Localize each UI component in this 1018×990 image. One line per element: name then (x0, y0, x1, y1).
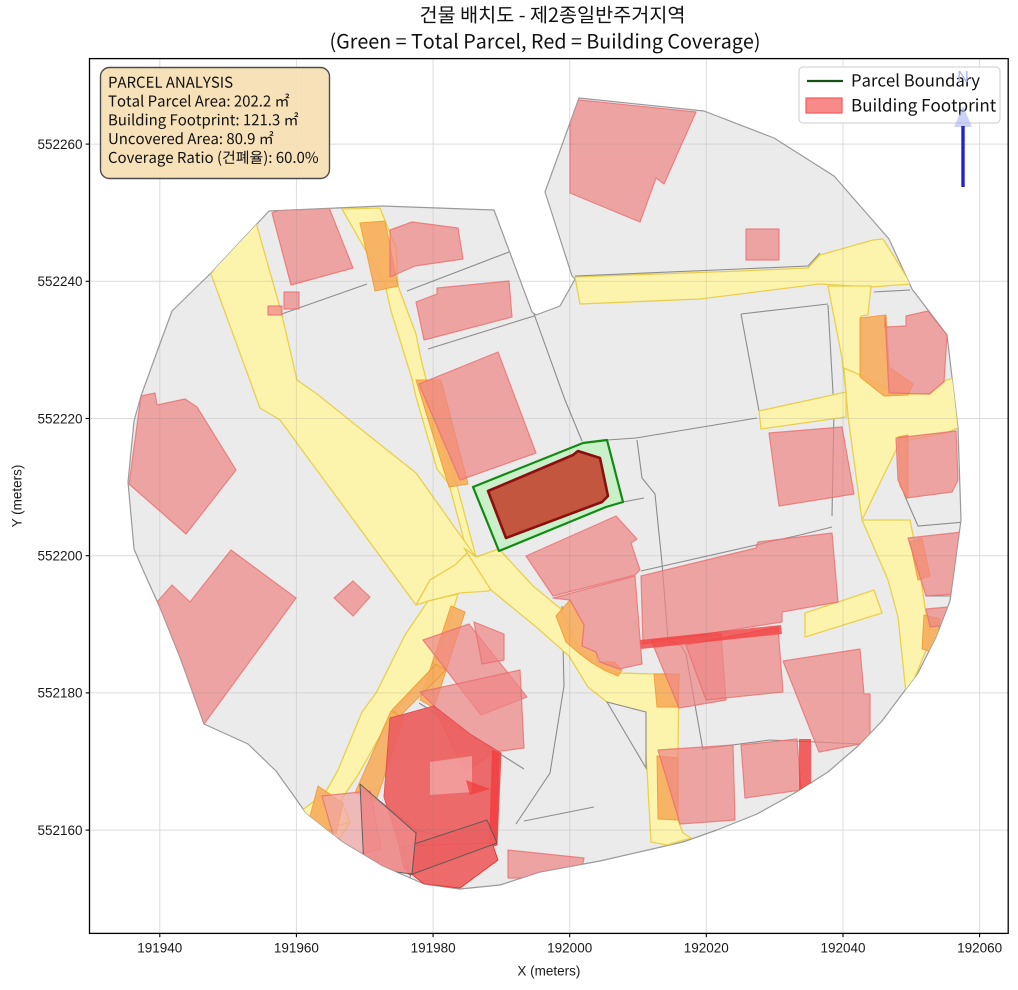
svg-text:552220: 552220 (37, 411, 82, 426)
svg-text:552180: 552180 (37, 686, 82, 701)
svg-text:X (meters): X (meters) (517, 964, 580, 979)
svg-text:N: N (957, 69, 969, 86)
svg-text:192000: 192000 (547, 941, 592, 956)
svg-text:192040: 192040 (820, 941, 865, 956)
svg-text:552200: 552200 (37, 549, 82, 564)
svg-text:552260: 552260 (37, 137, 82, 152)
svg-text:191960: 191960 (274, 941, 319, 956)
svg-text:552240: 552240 (37, 274, 82, 289)
svg-text:192060: 192060 (957, 941, 1002, 956)
svg-text:191940: 191940 (137, 941, 182, 956)
svg-text:Y (meters): Y (meters) (10, 465, 25, 528)
svg-text:192020: 192020 (684, 941, 729, 956)
svg-text:191980: 191980 (411, 941, 456, 956)
svg-text:552160: 552160 (37, 823, 82, 838)
